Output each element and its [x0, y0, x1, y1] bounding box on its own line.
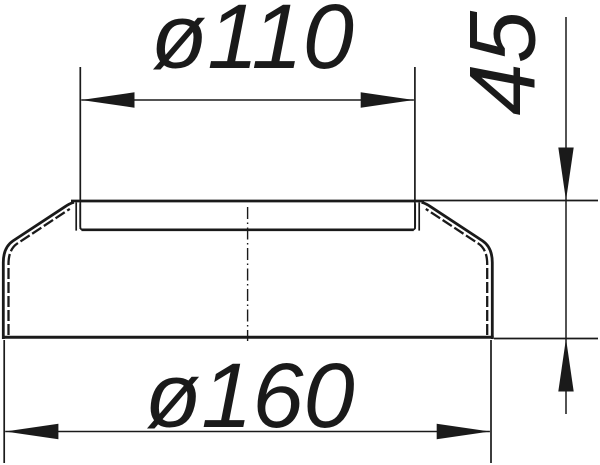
svg-text:ø110: ø110 [151, 0, 354, 88]
svg-text:ø160: ø160 [145, 345, 355, 447]
svg-text:45: 45 [450, 10, 555, 115]
